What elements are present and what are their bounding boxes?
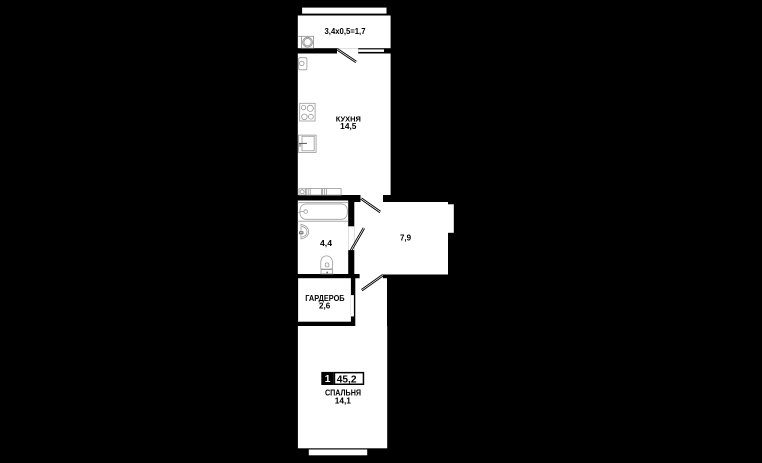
svg-text:14,1: 14,1: [335, 397, 352, 406]
svg-text:14,5: 14,5: [340, 122, 357, 131]
svg-text:2,6: 2,6: [319, 302, 331, 311]
svg-text:7,9: 7,9: [400, 233, 412, 242]
svg-text:45,2: 45,2: [337, 374, 357, 385]
svg-text:4,4: 4,4: [320, 239, 333, 248]
svg-text:1: 1: [325, 374, 331, 385]
svg-text:3,4x0,5=1,7: 3,4x0,5=1,7: [325, 27, 366, 36]
